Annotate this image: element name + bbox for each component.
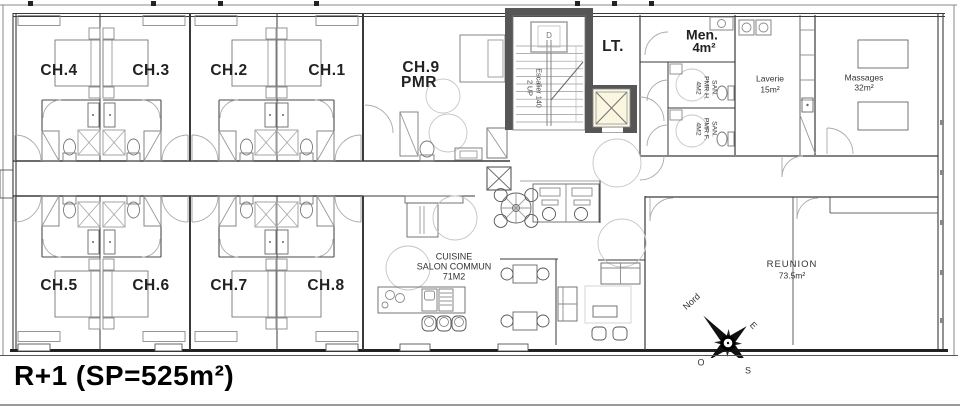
- room-label-massages-area: 32m²: [854, 84, 873, 93]
- room-label-ch8: CH.8: [307, 278, 344, 294]
- elevator: [585, 85, 637, 133]
- room-label-reunion: REUNION: [767, 260, 818, 270]
- compass-west-label: O: [697, 358, 704, 367]
- corridor-doors: [640, 97, 664, 180]
- round-table: [494, 189, 538, 228]
- room-label-san-pmr-f: SAN. PMR F. 4M2: [694, 118, 717, 140]
- floor-title: R+1 (SP=525m²): [14, 360, 234, 392]
- exterior-walls: [0, 1, 957, 355]
- room-label-ch3: CH.3: [132, 63, 169, 79]
- lounge: [558, 263, 640, 340]
- room-label-san-pmr-h: SAN. PMR H. 4M2: [694, 76, 717, 100]
- top-row-rooms: [15, 16, 361, 162]
- sanitary-block: [645, 17, 908, 177]
- stairwell: [505, 8, 593, 130]
- room-label-men-area: 4m²: [692, 41, 715, 55]
- floor-plan-drawing: [0, 0, 960, 358]
- floor-plan-page: CH.4 CH.3 CH.2 CH.1 CH.9 PMR CH.5 CH.6 C…: [0, 0, 960, 411]
- compass-south-label: S: [745, 366, 751, 375]
- plan-bottom-line: [0, 355, 958, 356]
- page-divider-line: [0, 404, 960, 406]
- bottom-row-rooms: [15, 196, 361, 342]
- room-label-ch4: CH.4: [40, 63, 77, 79]
- desks: [533, 184, 599, 222]
- room-label-ch9-pmr: PMR: [401, 75, 437, 91]
- room-label-cuisine-area: 71M2: [443, 272, 466, 281]
- room-label-lt: LT.: [602, 39, 624, 55]
- stair-label: Escalier 140 2 UP: [525, 68, 544, 108]
- room-label-ch5: CH.5: [40, 278, 77, 294]
- room-label-massages: Massages: [845, 74, 884, 83]
- room-label-ch2: CH.2: [210, 63, 247, 79]
- room-label-ch7: CH.7: [210, 278, 247, 294]
- room-ch9-pmr: [365, 35, 507, 161]
- stair-marker: D: [546, 32, 552, 40]
- room-label-laverie: Laverie: [756, 75, 784, 84]
- bar-stools: [422, 316, 466, 331]
- corridor-furniture: [487, 97, 664, 267]
- room-label-laverie-area: 15m²: [760, 86, 779, 95]
- room-label-ch1: CH.1: [308, 63, 345, 79]
- room-label-reunion-area: 73.5m²: [779, 272, 805, 281]
- dining-tables: [501, 265, 549, 330]
- room-label-ch6: CH.6: [132, 278, 169, 294]
